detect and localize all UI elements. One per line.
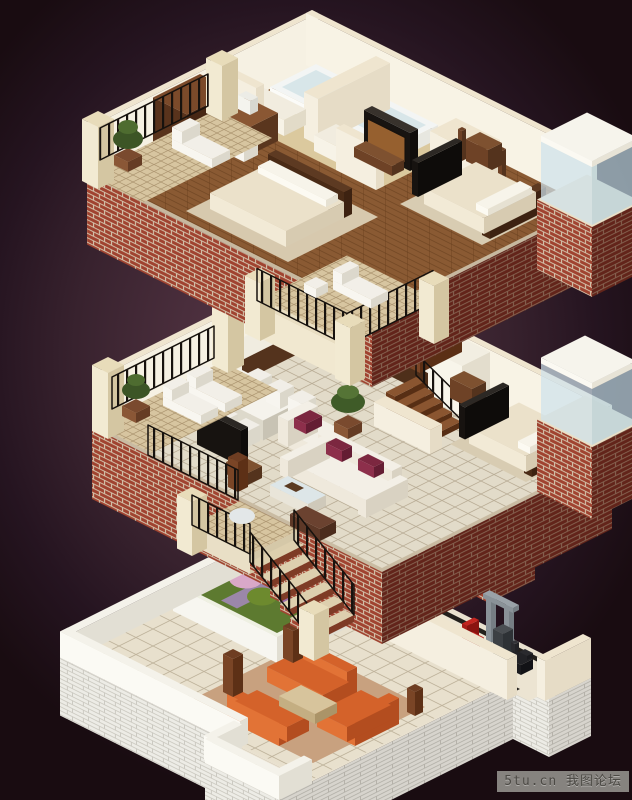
f3-balcony-pillar: [434, 279, 449, 345]
f2-plant: [337, 385, 359, 399]
top-floor: [82, 10, 632, 387]
floorplan-page: 5tu.cn 我图论坛: [0, 0, 632, 800]
f1-wood-sculpture: [415, 688, 423, 716]
watermark: 5tu.cn 我图论坛: [497, 771, 629, 792]
f3-plant: [118, 120, 138, 134]
f1-wood-sculpture: [223, 654, 233, 697]
floorplan-render: [0, 0, 632, 800]
f1-gym-machine-post: [486, 597, 491, 644]
f1-gym-wall-front: [507, 655, 517, 700]
f2-landing-pillar: [177, 495, 192, 557]
f2-round-table: [229, 508, 255, 524]
f1-ext-wall-right: [271, 772, 279, 800]
f3-balcony-pillar: [335, 321, 350, 387]
f1-gym-wall-right: [537, 657, 545, 701]
f3-bed-headboard: [344, 188, 352, 218]
f3-balcony-pillar: [82, 119, 98, 189]
f1-wood-sculpture: [233, 654, 243, 697]
f2-ext-stair-pillar: [314, 608, 329, 662]
f3-balcony-pillar: [419, 279, 434, 345]
f3-stair-post: [462, 129, 466, 161]
f2-balcony-pillar: [92, 365, 108, 439]
f3-bedroom-tv: [412, 160, 418, 197]
f3-balcony-pillar: [350, 321, 365, 387]
f2-plant: [127, 374, 145, 386]
f2-armchair-back: [278, 416, 288, 447]
f2-ext-stair-pillar: [299, 608, 314, 662]
f1-wood-sculpture: [407, 688, 415, 716]
scene-root: [60, 10, 632, 800]
f2-bedroom-tv: [459, 405, 465, 440]
f2-wood-sculpture: [238, 457, 248, 492]
f1-wood-sculpture: [283, 626, 293, 663]
f3-balcony-pillar: [222, 58, 238, 121]
